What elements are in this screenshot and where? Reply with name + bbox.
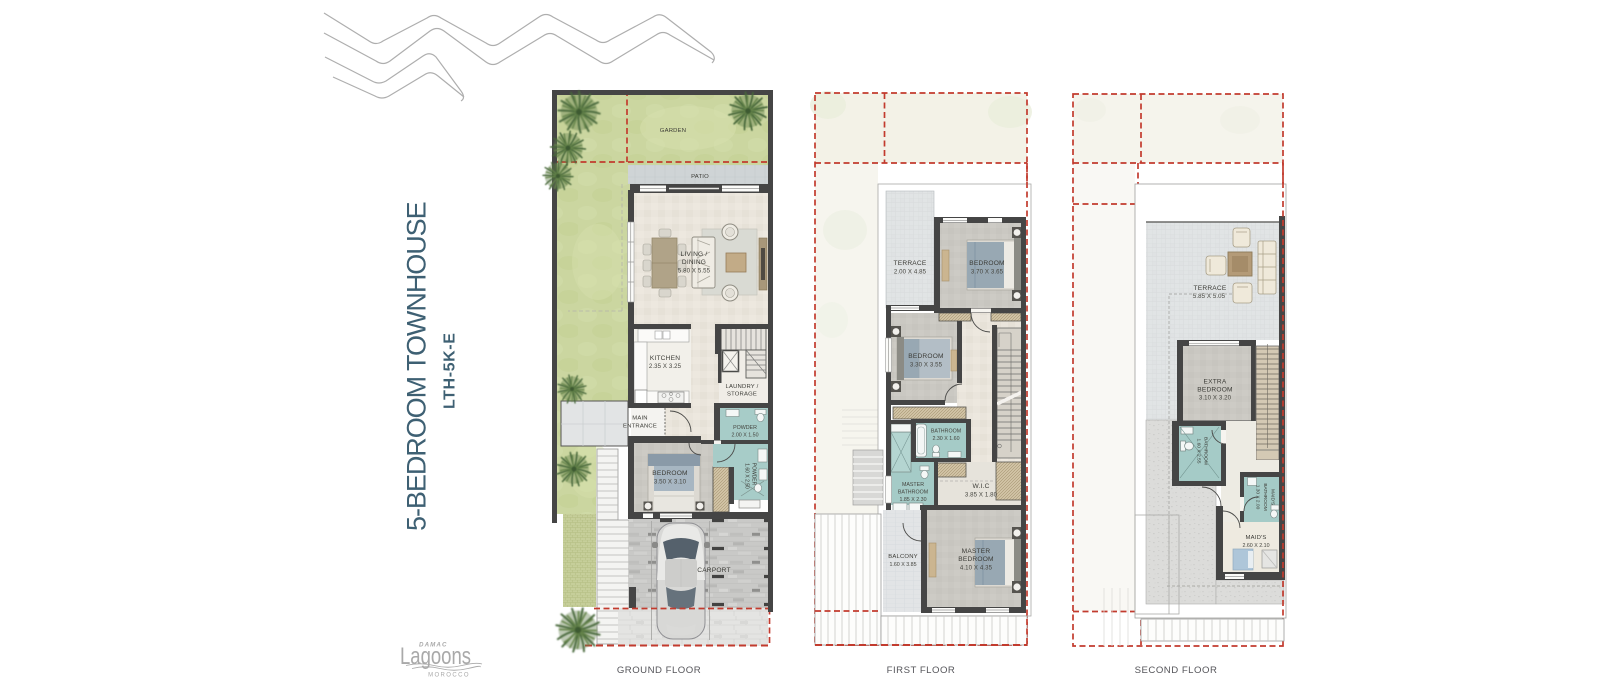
svg-text:MAID'S: MAID'S <box>1246 535 1267 541</box>
svg-text:BEDROOM: BEDROOM <box>958 556 993 563</box>
svg-text:LIVING /: LIVING / <box>681 251 708 258</box>
svg-text:POWDER: POWDER <box>751 463 757 486</box>
svg-text:MAID'S: MAID'S <box>1270 489 1276 505</box>
svg-text:PATIO: PATIO <box>691 174 709 180</box>
svg-text:MAIN: MAIN <box>632 416 648 422</box>
svg-text:1.60 X 2.50: 1.60 X 2.50 <box>744 463 750 489</box>
svg-text:KITCHEN: KITCHEN <box>650 355 680 362</box>
svg-text:FIRST FLOOR: FIRST FLOOR <box>887 665 956 676</box>
svg-text:1.85 X 2.30: 1.85 X 2.30 <box>899 497 926 503</box>
svg-text:2.30 X 1.60: 2.30 X 1.60 <box>932 436 959 442</box>
svg-text:3.30 X 3.55: 3.30 X 3.55 <box>910 362 943 369</box>
svg-text:BATHROOM: BATHROOM <box>1203 437 1209 465</box>
svg-text:MASTER: MASTER <box>962 548 991 555</box>
svg-text:3.50 X 3.10: 3.50 X 3.10 <box>654 479 687 486</box>
svg-text:TERRACE: TERRACE <box>1194 285 1227 292</box>
svg-text:MOROCCO: MOROCCO <box>428 673 470 679</box>
svg-text:1.60 X 2.55: 1.60 X 2.55 <box>1196 438 1202 463</box>
svg-text:2.00 X 1.50: 2.00 X 1.50 <box>731 433 758 439</box>
svg-text:3.85 X 1.80: 3.85 X 1.80 <box>965 492 998 499</box>
svg-text:3.70 X 3.65: 3.70 X 3.65 <box>971 269 1004 276</box>
svg-text:BEDROOM: BEDROOM <box>969 260 1004 267</box>
svg-text:BATHROOM: BATHROOM <box>931 429 961 435</box>
svg-text:3.10 X 3.20: 3.10 X 3.20 <box>1199 395 1232 402</box>
svg-text:GROUND FLOOR: GROUND FLOOR <box>617 665 701 676</box>
svg-text:2.60 X 2.10: 2.60 X 2.10 <box>1242 543 1269 549</box>
svg-text:2.35 X 3.25: 2.35 X 3.25 <box>649 363 682 370</box>
svg-text:POWDER: POWDER <box>733 425 757 431</box>
svg-text:BEDROOM: BEDROOM <box>652 470 687 477</box>
svg-text:TERRACE: TERRACE <box>894 260 927 267</box>
svg-text:BALCONY: BALCONY <box>888 554 918 560</box>
svg-text:W.I.C: W.I.C <box>972 483 989 490</box>
svg-text:LAUNDRY /: LAUNDRY / <box>725 384 758 390</box>
svg-text:2.00 X 4.85: 2.00 X 4.85 <box>894 269 927 276</box>
svg-text:BATHROOM: BATHROOM <box>1262 483 1268 510</box>
svg-text:5.80 X 5.55: 5.80 X 5.55 <box>678 268 711 275</box>
svg-text:MASTER: MASTER <box>902 482 924 488</box>
svg-text:STORAGE: STORAGE <box>727 392 757 398</box>
svg-text:DINING: DINING <box>682 259 706 266</box>
svg-text:LTH-5K-E: LTH-5K-E <box>442 333 459 410</box>
svg-text:BEDROOM: BEDROOM <box>908 353 943 360</box>
svg-text:CARPORT: CARPORT <box>697 567 731 574</box>
svg-text:4.10 X 4.35: 4.10 X 4.35 <box>960 565 993 572</box>
svg-text:SECOND FLOOR: SECOND FLOOR <box>1135 665 1218 676</box>
svg-text:BATHROOM: BATHROOM <box>898 490 928 496</box>
svg-text:5-BEDROOM TOWNHOUSE: 5-BEDROOM TOWNHOUSE <box>402 202 432 531</box>
svg-text:BEDROOM: BEDROOM <box>1197 387 1232 394</box>
svg-text:ENTRANCE: ENTRANCE <box>623 424 657 430</box>
svg-text:1.60 X 3.85: 1.60 X 3.85 <box>889 562 916 568</box>
svg-text:GARDEN: GARDEN <box>660 128 686 134</box>
svg-text:EXTRA: EXTRA <box>1204 379 1227 386</box>
